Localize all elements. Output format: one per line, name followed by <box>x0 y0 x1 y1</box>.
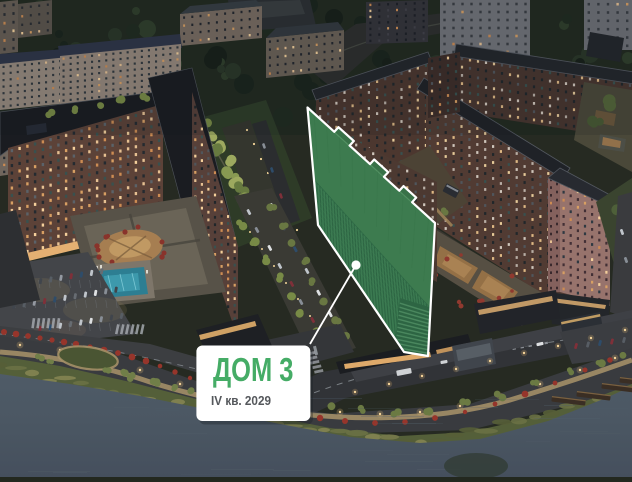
svg-text:IV кв. 2029: IV кв. 2029 <box>211 393 271 408</box>
svg-text:ДОМ 3: ДОМ 3 <box>213 351 294 388</box>
